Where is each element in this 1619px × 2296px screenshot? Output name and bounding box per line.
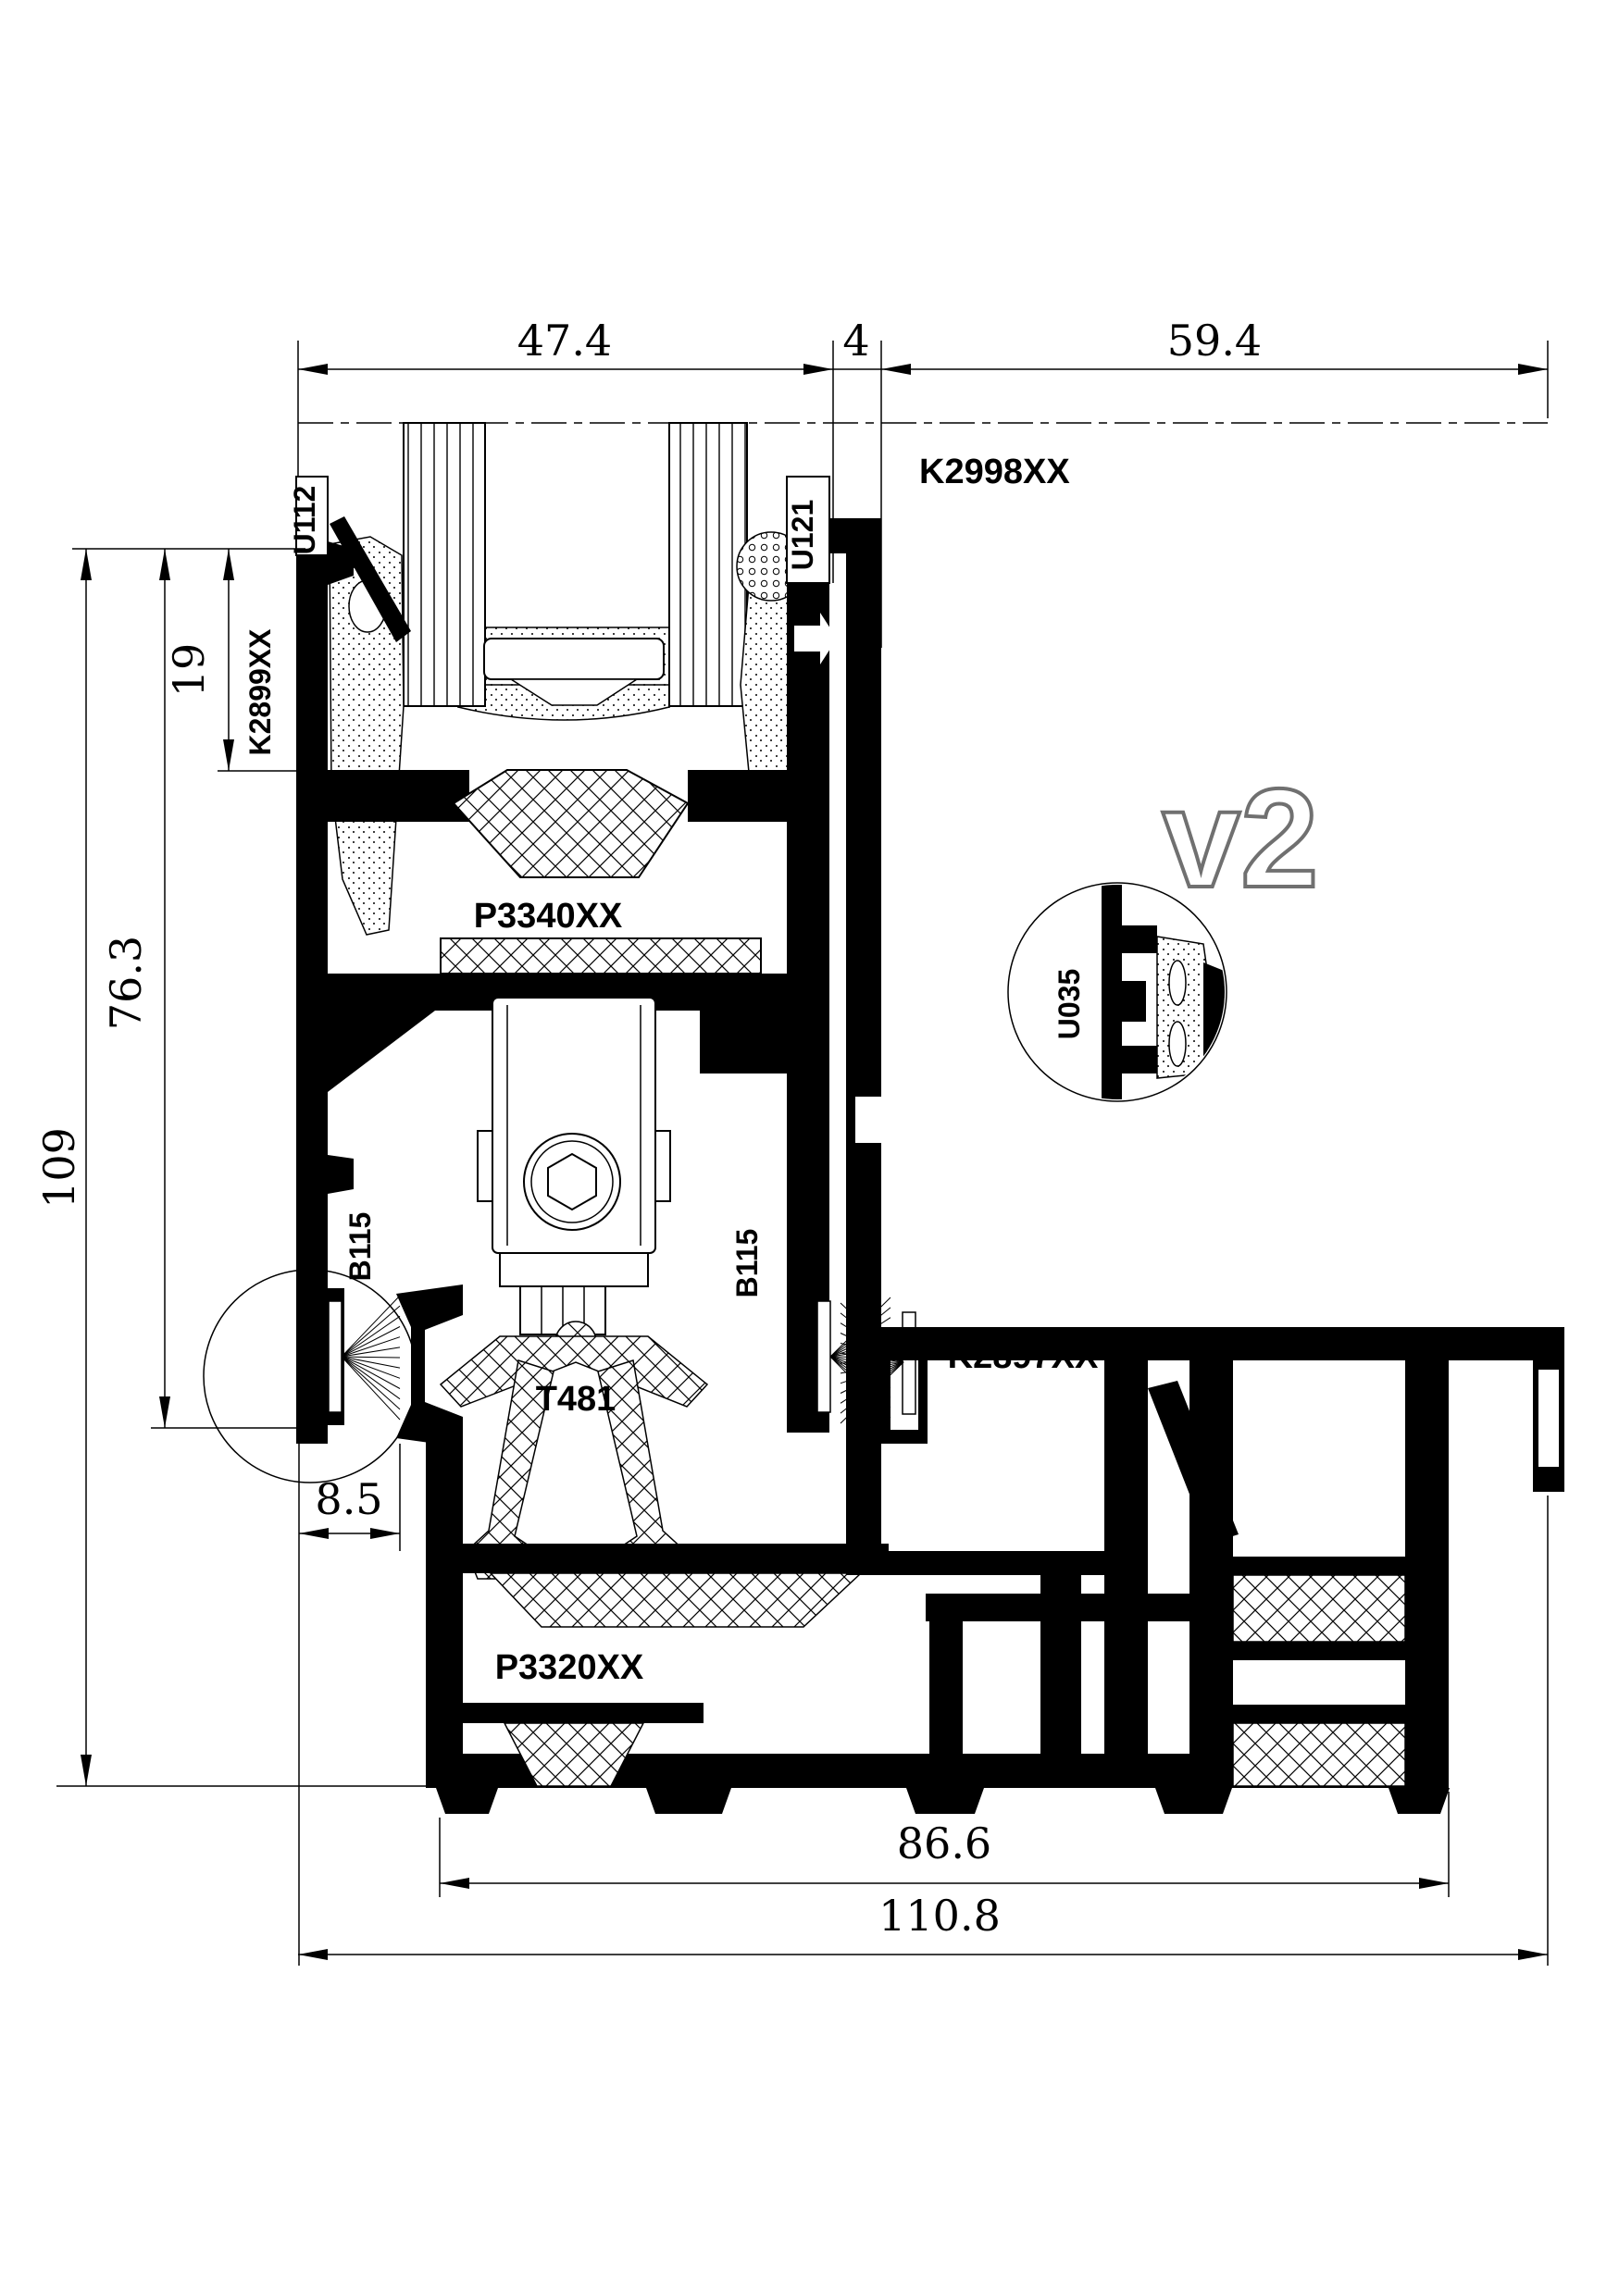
dim-top-sash-width: 47.4 xyxy=(517,316,612,366)
left-wall xyxy=(296,555,328,1444)
profile-cross-section-drawing: 47.4 4 59.4 109 76.3 19 8.5 86.6 110.8 U… xyxy=(0,0,1619,2296)
label-t481: T481 xyxy=(536,1380,616,1419)
dim-offset: 8.5 xyxy=(315,1474,382,1524)
u035-tooth-top xyxy=(1122,925,1157,953)
sash-band-right xyxy=(688,770,829,822)
sill-upper-bar xyxy=(460,1544,889,1573)
label-detail-version-v2: v2 xyxy=(1162,760,1318,917)
label-u121: U121 xyxy=(786,500,819,571)
glass-pane-outer xyxy=(404,423,485,706)
label-p3320xx: P3320XX xyxy=(495,1648,644,1687)
sill-foot-2 xyxy=(646,1788,731,1814)
jamb-thermal-break-2 xyxy=(1233,1723,1405,1786)
sill-shelf xyxy=(846,1551,1107,1575)
u035-rail xyxy=(1102,883,1122,1101)
frame-right-wall xyxy=(846,518,881,1575)
jamb-bar-1 xyxy=(1233,1557,1405,1575)
fastener-assembly xyxy=(478,998,670,1334)
sill-foot-3 xyxy=(906,1788,984,1814)
glass-pane-inner xyxy=(669,423,747,706)
dim-bottom-inner-width: 86.6 xyxy=(897,1818,991,1868)
jamb-bar-2 xyxy=(1233,1642,1405,1660)
sill-lower-bar xyxy=(463,1703,704,1723)
fastener-tab-left xyxy=(478,1131,492,1201)
dim-bottom-total-width: 110.8 xyxy=(878,1891,1001,1941)
u035-pill-2 xyxy=(1169,1022,1186,1066)
dim-top-frame-width: 59.4 xyxy=(1167,316,1262,366)
setting-block xyxy=(484,639,664,679)
glazing-gasket-wedge xyxy=(454,770,688,877)
sill-foot-1 xyxy=(436,1788,498,1814)
frame-wall-notch xyxy=(855,1097,881,1143)
fastener-tab-right xyxy=(655,1131,670,1201)
fastener-foot xyxy=(500,1253,648,1286)
jamb-inner-bar xyxy=(1104,1359,1148,1754)
adapter-right-hook-slot xyxy=(1538,1370,1559,1467)
brush-base-left xyxy=(329,1301,342,1412)
label-b115-middle: B115 xyxy=(730,1229,764,1298)
jamb-left-wall xyxy=(1189,1359,1233,1788)
left-wall-lip xyxy=(328,1155,354,1194)
sash-band-left xyxy=(328,770,469,822)
thermal-break-t481 xyxy=(441,1322,707,1579)
dim-left-top-height: 19 xyxy=(164,643,214,698)
dim-left-total-height: 109 xyxy=(34,1127,84,1209)
u035-wedge xyxy=(1203,962,1227,1064)
label-u112: U112 xyxy=(288,486,321,555)
sash-floor-left-mass xyxy=(328,1011,435,1092)
label-b115-left: B115 xyxy=(343,1212,377,1282)
sill-thermal-break-upper xyxy=(491,1573,861,1627)
technical-drawing-sheet: 47.4 4 59.4 109 76.3 19 8.5 86.6 110.8 U… xyxy=(0,0,1619,2296)
jamb-hbar xyxy=(926,1594,1194,1621)
u035-tooth-bottom xyxy=(1122,1046,1157,1074)
jamb-thermal-break-1 xyxy=(1233,1575,1405,1642)
jamb-right-wall xyxy=(1405,1359,1449,1788)
u035-tooth-mid xyxy=(1122,981,1146,1022)
u035-pill-1 xyxy=(1169,961,1186,1005)
sill-left-wall xyxy=(426,1433,463,1758)
label-k2998xx: K2998XX xyxy=(919,453,1070,491)
label-u035: U035 xyxy=(1052,969,1086,1040)
frame-wall-lip xyxy=(829,518,846,553)
jamb-bar-3 xyxy=(1233,1705,1405,1723)
brush-seal-left xyxy=(342,1296,400,1420)
label-b115-right: B115 xyxy=(846,1229,879,1298)
jamb-stem xyxy=(929,1621,963,1754)
sash-floor-right-mass xyxy=(700,1011,829,1074)
dim-left-mid-height: 76.3 xyxy=(101,936,151,1030)
dim-top-gap: 4 xyxy=(842,316,869,366)
gasket-band xyxy=(441,938,761,974)
sill-foot-5 xyxy=(1389,1788,1450,1814)
label-k2897xx: K2897XX xyxy=(948,1337,1099,1376)
brush-base-middle xyxy=(817,1301,830,1412)
label-k2899xx: K2899XX xyxy=(243,628,277,756)
sill-foot-4 xyxy=(1155,1788,1232,1814)
label-p3340xx: P3340XX xyxy=(474,897,623,936)
